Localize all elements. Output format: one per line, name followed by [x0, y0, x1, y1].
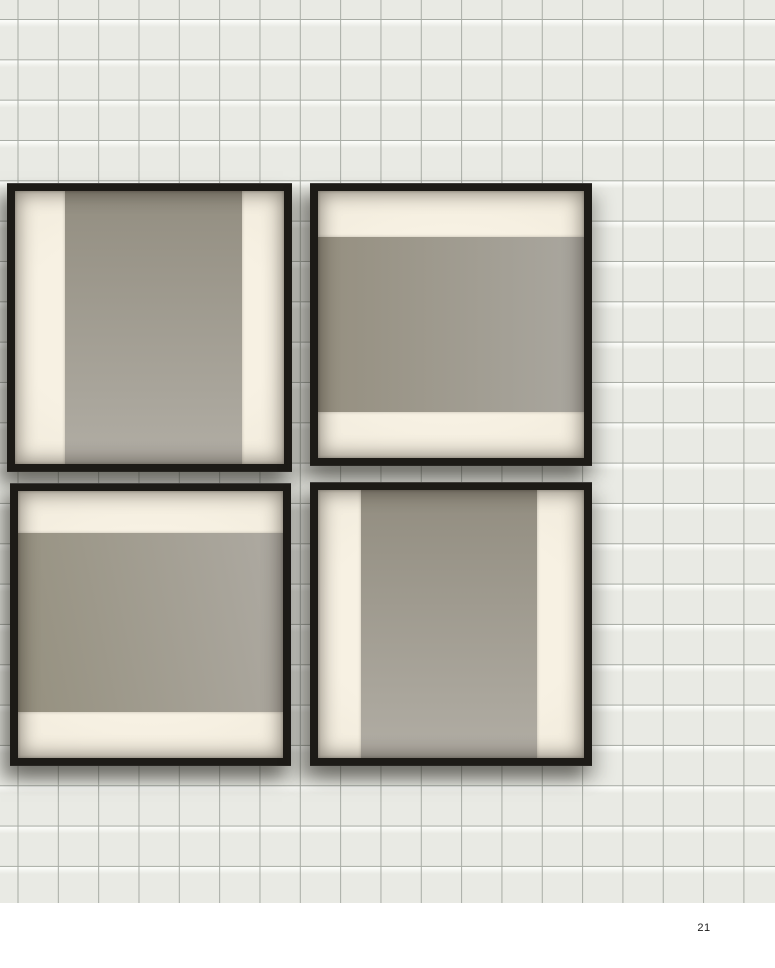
- page-number: 21: [692, 921, 716, 935]
- artwork-frame-top-right: [310, 183, 592, 466]
- horizontal-gray-band: [318, 237, 584, 412]
- artwork-frame-bottom-left: [10, 483, 291, 766]
- artwork-canvas-top-right: [318, 191, 584, 458]
- grid-wallpaper: [0, 0, 775, 903]
- artwork-frame-bottom-right: [310, 482, 592, 766]
- horizontal-gray-band: [18, 533, 283, 712]
- artwork-canvas-top-left: [15, 191, 284, 464]
- artwork-canvas-bottom-left: [18, 491, 283, 758]
- artwork-canvas-bottom-right: [318, 490, 584, 758]
- artwork-frame-top-left: [7, 183, 292, 472]
- vertical-gray-band: [361, 490, 537, 758]
- vertical-gray-band: [65, 191, 243, 464]
